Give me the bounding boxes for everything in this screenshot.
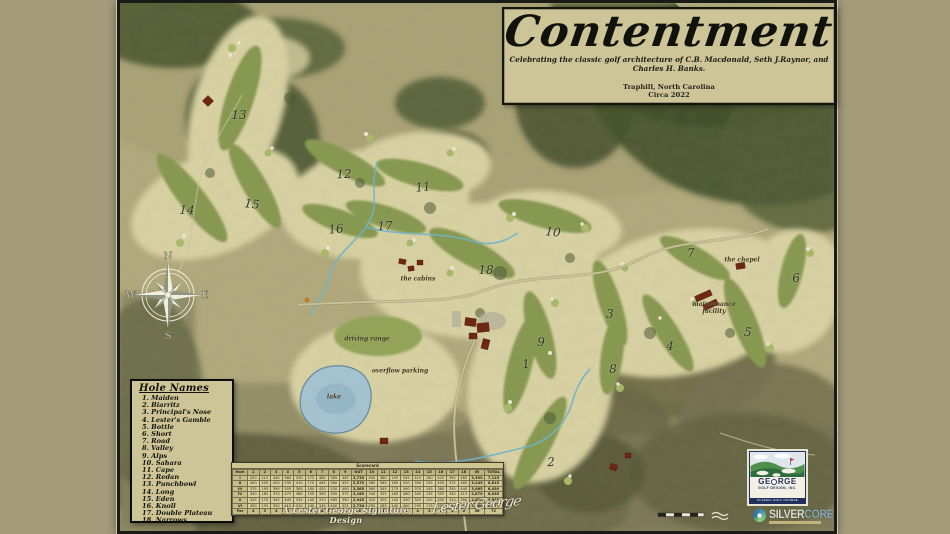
silvercore-swirl-icon [753, 509, 766, 522]
core-word: CORE [804, 508, 833, 521]
hole-names-list: 1. Maiden2. Biarritz3. Principal's Nose4… [139, 395, 230, 525]
map-label: lake [327, 394, 341, 401]
map-label: driving range [344, 336, 389, 343]
george-name-left: GE [758, 478, 771, 486]
scorecard-cell: 3,245 [470, 481, 485, 487]
title-block: Contentment Celebrating the classic golf… [502, 7, 836, 105]
scorecard-cell: 3,390 [470, 475, 485, 481]
scorecard-cell: 3,365 [351, 486, 366, 492]
silvercore-subbar [769, 521, 821, 524]
course-subtitle: Celebrating the classic golf architectur… [504, 55, 834, 73]
scorecard-tee-row: IV3501853704753601503955003753,160340325… [233, 492, 503, 498]
scorecard-tee-row: I4202154405604301754655854453,7354003801… [233, 475, 503, 481]
scorecard-cell: 3,735 [351, 475, 366, 481]
map-label: overflow parking [372, 368, 428, 375]
silvercore-logo: SILVERCORE [753, 507, 845, 531]
map-label: the cabins [401, 276, 436, 283]
scorecard-cell: 3,065 [470, 486, 485, 492]
scorecard-cell: 3,160 [351, 492, 366, 498]
scorecard-tee-row: II4002054205354101704455604253,570385365… [233, 481, 503, 487]
scorecard-cell: 3,570 [351, 481, 366, 487]
course-poster: N E S W 123456789101112131415161718 the … [117, 0, 837, 534]
silver-word: SILVER [769, 508, 804, 521]
hole-names-heading: Hole Names [139, 383, 230, 394]
george-logo-name: GE RGE [750, 478, 805, 486]
course-title: Contentment [502, 9, 836, 55]
george-logo-tagline: CLASSIC GOLF COURSE ARCHITECTURE [750, 498, 805, 503]
scorecard-tee-row: III3751953955053851604205304003,36536534… [233, 486, 503, 492]
hole-names-box: Hole Names 1. Maiden2. Biarritz3. Princi… [130, 379, 234, 523]
map-label: maintenance facility [692, 301, 736, 315]
george-logo-line2: GOLF DESIGN, INC. [750, 486, 805, 490]
scorecard-cell: Par [233, 509, 248, 515]
map-label: the chapel [724, 257, 759, 264]
george-logo-art-icon [750, 452, 805, 477]
scorecard-col-header: TOTAL [485, 470, 503, 476]
george-name-right: RGE [778, 478, 797, 486]
scorecard-cell: 2,945 [351, 497, 366, 503]
silvercore-wordmark: SILVERCORE [769, 508, 834, 521]
hole-name-item: 18. Narrows [142, 517, 230, 524]
screenshot-stage: N E S W 123456789101112131415161718 the … [0, 0, 950, 534]
signature-caption: A Lester George Signature Design [265, 505, 427, 525]
scorecard-cell: 4 [248, 509, 260, 515]
golf-ball-icon [771, 479, 777, 485]
course-circa: Circa 2022 [648, 92, 689, 100]
george-golf-design-logo: GE RGE GOLF DESIGN, INC. CLASSIC GOLF CO… [749, 451, 806, 504]
